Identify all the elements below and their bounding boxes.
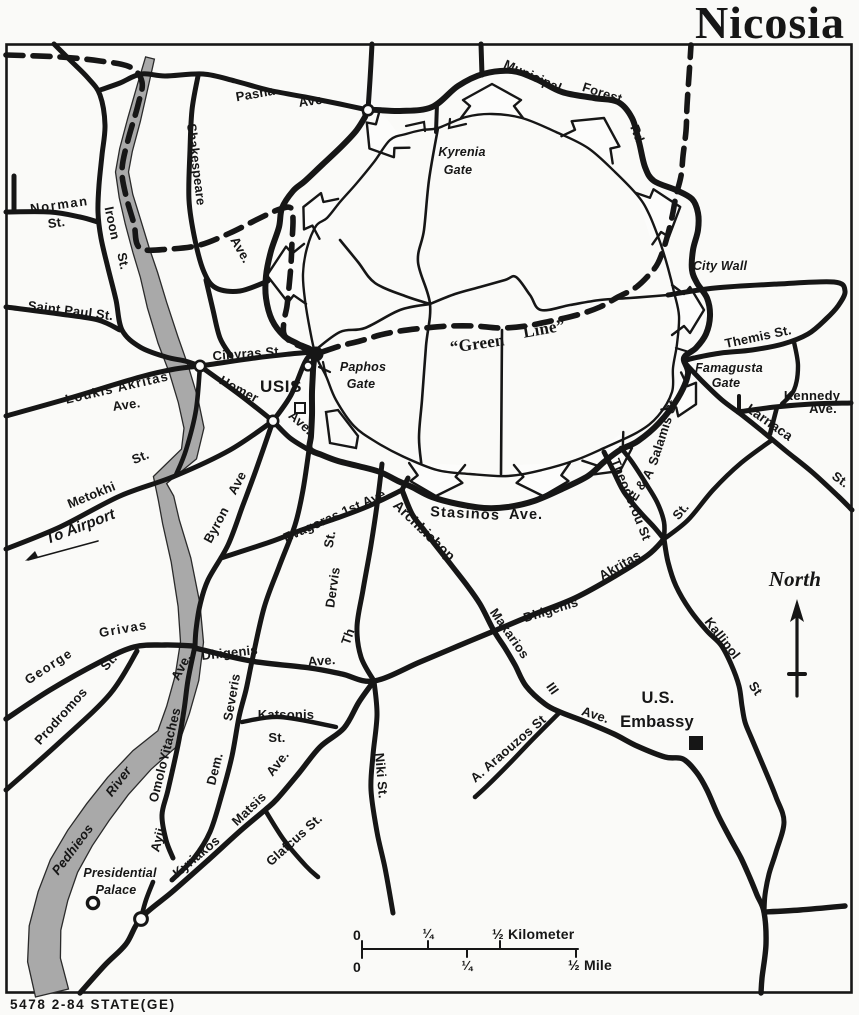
svg-text:St.: St. xyxy=(268,730,285,745)
svg-text:Kyrenia: Kyrenia xyxy=(438,145,485,159)
svg-text:Paphos: Paphos xyxy=(340,360,386,374)
svg-text:St.: St. xyxy=(47,214,66,231)
svg-text:5478 2-84 STATE(GE): 5478 2-84 STATE(GE) xyxy=(10,997,176,1012)
svg-text:Nicosia: Nicosia xyxy=(695,0,845,48)
svg-text:½ Mile: ½ Mile xyxy=(568,957,612,973)
svg-text:USIS: USIS xyxy=(260,377,302,396)
svg-text:Gate: Gate xyxy=(444,163,473,177)
svg-text:¼: ¼ xyxy=(461,958,473,973)
svg-text:Palace: Palace xyxy=(96,883,137,897)
svg-text:U.S.: U.S. xyxy=(642,689,675,707)
svg-text:City Wall: City Wall xyxy=(693,259,748,273)
svg-text:Ave.: Ave. xyxy=(509,507,543,523)
svg-text:½ Kilometer: ½ Kilometer xyxy=(492,926,575,942)
svg-text:Ave.: Ave. xyxy=(809,401,837,416)
svg-text:Embassy: Embassy xyxy=(620,713,694,731)
svg-text:Famagusta: Famagusta xyxy=(695,361,763,375)
svg-text:Katsonis: Katsonis xyxy=(258,707,315,722)
svg-text:0: 0 xyxy=(353,959,361,975)
svg-text:Gate: Gate xyxy=(712,376,741,390)
svg-text:Presidential: Presidential xyxy=(83,866,157,880)
svg-text:Ave.: Ave. xyxy=(307,652,336,669)
svg-text:St.: St. xyxy=(321,529,339,549)
svg-text:¼: ¼ xyxy=(422,926,434,941)
svg-text:Gate: Gate xyxy=(347,377,376,391)
svg-text:0: 0 xyxy=(353,927,361,943)
svg-text:North: North xyxy=(768,567,821,591)
